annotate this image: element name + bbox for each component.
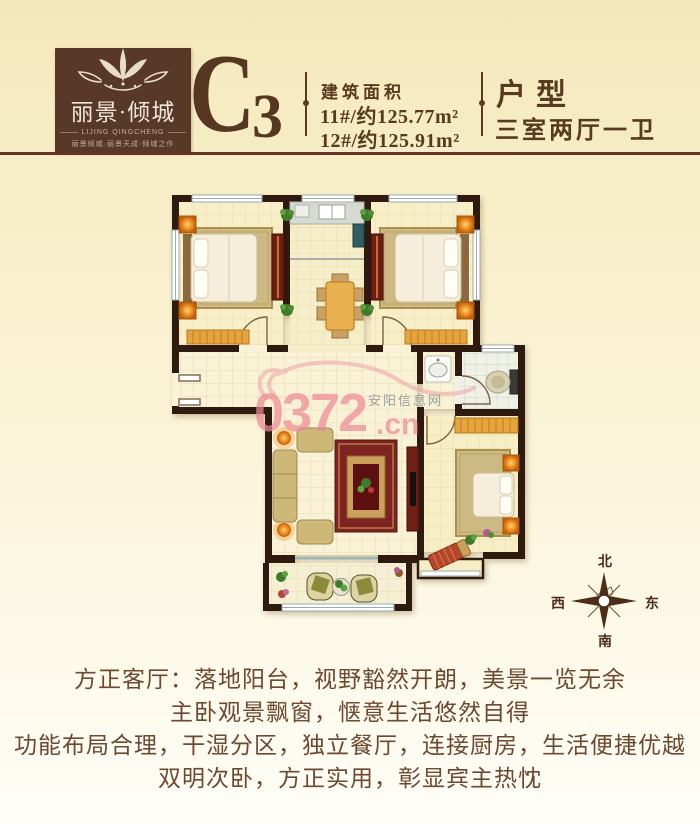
floor-plan-svg [167,188,532,628]
compass-east-label: 东 [645,593,659,613]
tv-cabinet [407,447,419,531]
lily-ornament-icon [71,48,175,92]
unit-code: C [189,42,255,146]
compass-west-label: 西 [551,593,565,613]
brand-logo: 丽景·倾城 LIJING QINGCHENG 丽景倾城·丽景天成·倾城之作 [55,48,191,152]
description-line: 主卧观景飘窗，惬意生活悠然自得 [0,696,700,729]
toilet [486,370,518,394]
description-line: 功能布局合理，干湿分区，独立餐厅，连接厨房，生活便捷优越 [0,729,700,762]
washbasin [425,356,451,382]
brand-tagline: 丽景倾城·丽景天成·倾城之作 [72,139,175,149]
brand-name: 丽景·倾城 [71,93,176,127]
description-line: 双明次卧，方正实用，彰显宾主热忱 [0,762,700,795]
unit-code-number: 3 [252,86,283,148]
header-divider-dot [479,100,485,106]
compass: 北 南 西 东 [549,551,661,651]
brand-name-en: LIJING QINGCHENG [60,129,187,136]
description-line: 方正客厅：落地阳台，视野豁然开朗，美景一览无余 [0,663,700,696]
header-divider-dot [303,100,309,106]
balcony-slide-door [295,557,378,560]
floor-plan [167,188,532,628]
coffee-table [335,440,397,532]
unit-type-value: 三室两厅一卫 [495,110,657,145]
compass-north-label: 北 [549,551,661,571]
area-line-2: 12#/约125.91m² [320,124,460,153]
unit-type-label: 户型 [496,70,576,114]
compass-south-label: 南 [549,631,661,651]
header-rule [0,152,700,155]
description-block: 方正客厅：落地阳台，视野豁然开朗，美景一览无余 主卧观景飘窗，惬意生活悠然自得 … [0,663,700,795]
